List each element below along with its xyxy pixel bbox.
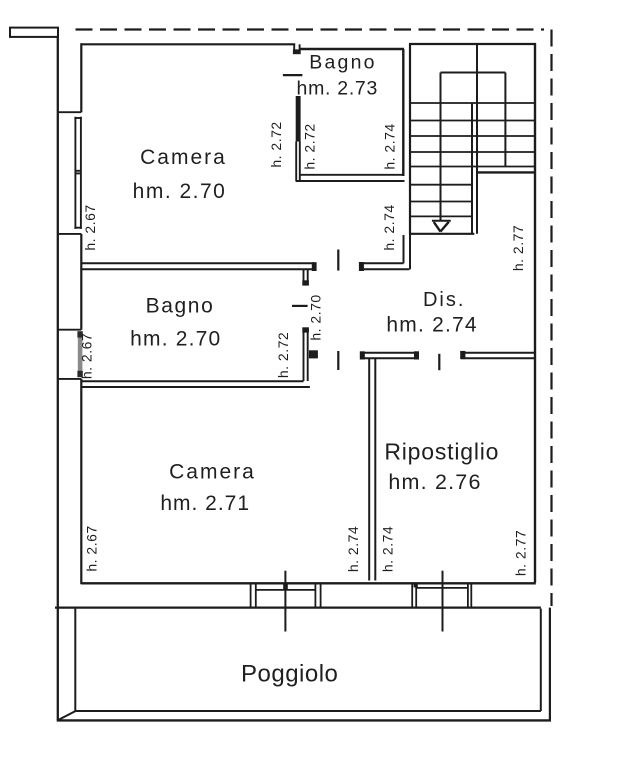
- svg-text:hm. 2.70: hm. 2.70: [130, 328, 221, 351]
- svg-text:h. 2.72: h. 2.72: [268, 121, 284, 167]
- svg-text:hm. 2.70: hm. 2.70: [133, 180, 227, 203]
- svg-text:h. 2.77: h. 2.77: [513, 530, 529, 576]
- svg-text:h. 2.67: h. 2.67: [82, 204, 98, 250]
- svg-text:Camera: Camera: [140, 146, 227, 169]
- svg-text:Bagno: Bagno: [146, 295, 215, 318]
- svg-text:h. 2.72: h. 2.72: [302, 123, 318, 169]
- svg-text:h. 2.70: h. 2.70: [308, 294, 324, 340]
- svg-text:h. 2.74: h. 2.74: [381, 204, 397, 250]
- svg-text:h. 2.74: h. 2.74: [382, 123, 398, 169]
- svg-text:hm. 2.73: hm. 2.73: [297, 78, 378, 100]
- svg-text:hm. 2.76: hm. 2.76: [388, 470, 481, 494]
- svg-text:h. 2.67: h. 2.67: [84, 525, 100, 571]
- svg-text:h. 2.74: h. 2.74: [380, 526, 396, 572]
- svg-text:Dis.: Dis.: [423, 289, 465, 311]
- svg-text:Camera: Camera: [169, 461, 256, 484]
- svg-text:Poggiolo: Poggiolo: [241, 661, 338, 688]
- svg-text:h. 2.72: h. 2.72: [275, 332, 291, 378]
- svg-text:hm. 2.74: hm. 2.74: [386, 314, 477, 337]
- svg-text:h. 2.77: h. 2.77: [510, 225, 526, 271]
- svg-text:hm. 2.71: hm. 2.71: [160, 492, 250, 515]
- svg-text:Bagno: Bagno: [309, 52, 376, 74]
- svg-text:Ripostiglio: Ripostiglio: [384, 439, 499, 465]
- svg-text:h. 2.67: h. 2.67: [79, 333, 95, 379]
- svg-text:h. 2.74: h. 2.74: [345, 526, 361, 572]
